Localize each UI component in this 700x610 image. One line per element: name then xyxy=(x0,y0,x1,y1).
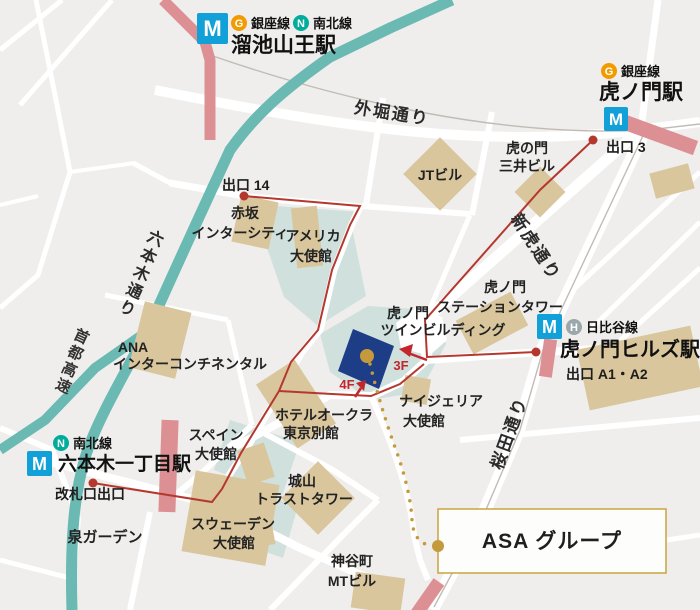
america-label-2: 大使館 xyxy=(290,248,332,264)
ana-label-2: インターコンチネンタル xyxy=(113,356,267,372)
mitsui-label-1: 虎の門 xyxy=(506,140,548,156)
hills-exit-dot xyxy=(532,348,541,357)
toranomon-exit-label: 出口 3 xyxy=(606,139,646,155)
floor-4f-label: 4F xyxy=(339,377,354,392)
svg-text:N: N xyxy=(57,438,65,450)
namboku-line-label: 南北線 xyxy=(73,436,113,451)
tameike-station-name: 溜池山王駅 xyxy=(231,32,337,57)
floor-3f-label: 3F xyxy=(393,358,408,373)
twin-label-2: ツインビルディング xyxy=(380,322,505,338)
america-label-1: アメリカ xyxy=(285,228,340,244)
roppongi-exit-label: 改札口出口 xyxy=(55,486,125,502)
sweden-label-1: スウェーデン xyxy=(191,516,275,532)
kamiyacho-label-2: MTビル xyxy=(328,573,376,589)
access-map: 3F 4F ASA グループ 外堀通り 新虎通り 桜田通り 六本木通り 首都高速… xyxy=(0,0,700,610)
svg-text:N: N xyxy=(297,18,305,30)
metro-logo-letter: M xyxy=(203,16,221,41)
akasaka-label-2: インターシティ xyxy=(192,225,289,241)
kamiyacho-label-1: 神谷町 xyxy=(331,553,373,569)
ginza-line-label: 銀座線 xyxy=(251,16,291,31)
okura-label-1: ホテルオークラ xyxy=(275,407,373,423)
okura-label-2: 東京別館 xyxy=(283,425,339,441)
exit14-label: 出口 14 xyxy=(222,177,270,193)
destination-label: ASA グループ xyxy=(482,529,622,553)
station-tower-label-1: 虎ノ門 xyxy=(484,279,526,295)
spain-label-2: 大使館 xyxy=(195,446,237,462)
svg-text:G: G xyxy=(605,66,614,78)
building-gold-dot xyxy=(360,349,374,363)
station-tower-label-2: ステーションタワー xyxy=(437,299,563,315)
metro-logo-letter: M xyxy=(32,454,47,474)
metro-logo-letter: M xyxy=(609,110,623,129)
ginza-line-label: 銀座線 xyxy=(621,64,661,79)
hills-station-name: 虎ノ門ヒルズ駅 xyxy=(560,337,700,361)
shiroyama-label-2: トラストタワー xyxy=(255,491,353,507)
izumi-garden-label: 泉ガーデン xyxy=(66,528,142,546)
destination-gold-dot xyxy=(432,540,444,552)
twin-label-1: 虎ノ門 xyxy=(387,305,429,321)
spain-label-1: スペイン xyxy=(188,427,243,443)
svg-text:H: H xyxy=(570,322,578,334)
ana-label-1: ANA xyxy=(118,339,148,355)
hibiya-line-label: 日比谷線 xyxy=(586,320,639,335)
akasaka-label-1: 赤坂 xyxy=(231,205,260,221)
shiroyama-label-1: 城山 xyxy=(288,473,316,489)
sweden-label-2: 大使館 xyxy=(213,535,255,551)
svg-text:G: G xyxy=(235,18,244,30)
nigeria-label-2: 大使館 xyxy=(403,413,445,429)
mitsui-label-2: 三井ビル xyxy=(499,158,555,174)
roppongi-station-name: 六本木一丁目駅 xyxy=(58,452,192,475)
namboku-line-label: 南北線 xyxy=(313,16,353,31)
hills-exit-label: 出口 A1・A2 xyxy=(566,366,648,382)
toranomon-station-name: 虎ノ門駅 xyxy=(599,79,684,104)
jt-label: JTビル xyxy=(418,167,462,183)
nigeria-label-1: ナイジェリア xyxy=(399,393,483,409)
metro-logo-letter: M xyxy=(542,317,557,337)
destination-box: ASA グループ xyxy=(438,509,666,573)
toranomon-exit-dot xyxy=(589,136,598,145)
